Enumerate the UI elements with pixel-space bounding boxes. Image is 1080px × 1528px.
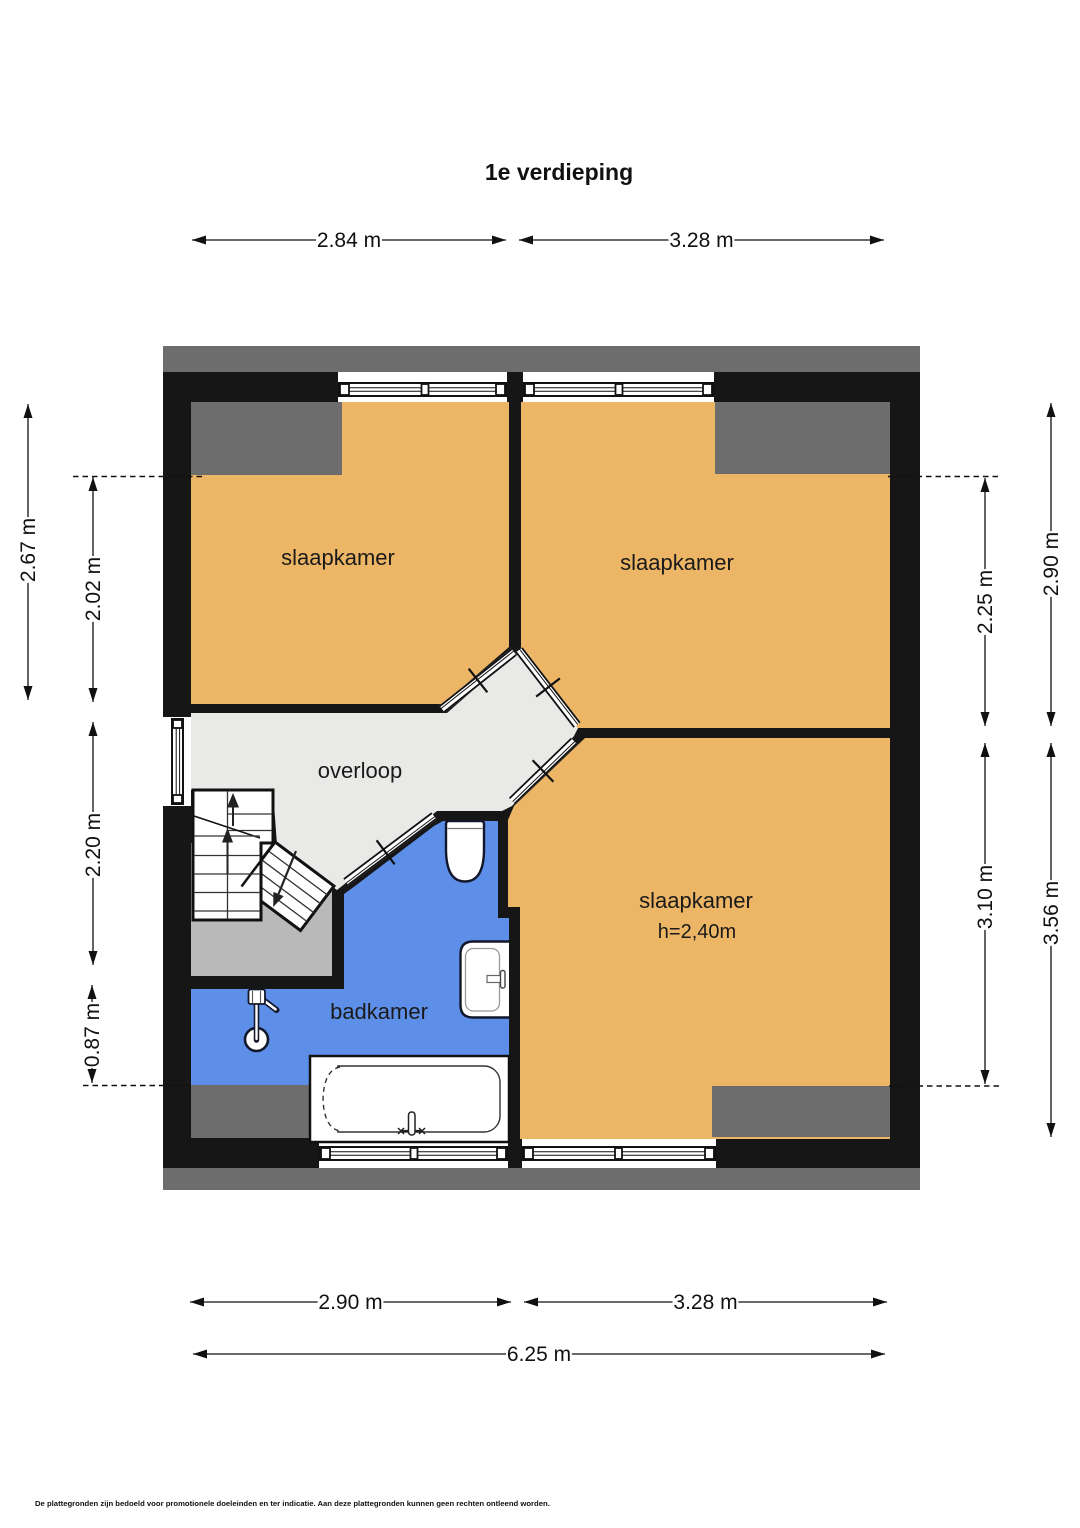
svg-text:3.28 m: 3.28 m [669,229,733,252]
svg-text:3.10 m: 3.10 m [974,865,997,929]
svg-text:6.25 m: 6.25 m [507,1343,571,1366]
svg-text:1e verdieping: 1e verdieping [485,159,633,185]
svg-text:h=2,40m: h=2,40m [658,921,736,943]
svg-text:slaapkamer: slaapkamer [620,550,734,575]
svg-text:2.90 m: 2.90 m [318,1291,382,1314]
svg-text:2.20 m: 2.20 m [82,813,105,877]
svg-text:slaapkamer: slaapkamer [281,545,395,570]
svg-text:slaapkamer: slaapkamer [639,888,753,913]
svg-text:2.25 m: 2.25 m [974,570,997,634]
svg-text:3.28 m: 3.28 m [673,1291,737,1314]
svg-text:3.56 m: 3.56 m [1040,881,1063,945]
svg-text:2.84 m: 2.84 m [317,229,381,252]
svg-text:overloop: overloop [318,758,402,783]
svg-text:2.02 m: 2.02 m [82,557,105,621]
svg-text:0.87 m: 0.87 m [81,1003,104,1067]
svg-text:De plattegronden zijn bedoeld: De plattegronden zijn bedoeld voor promo… [35,1499,550,1508]
svg-text:2.67 m: 2.67 m [17,518,40,582]
svg-text:badkamer: badkamer [330,999,428,1024]
svg-text:2.90 m: 2.90 m [1040,532,1063,596]
